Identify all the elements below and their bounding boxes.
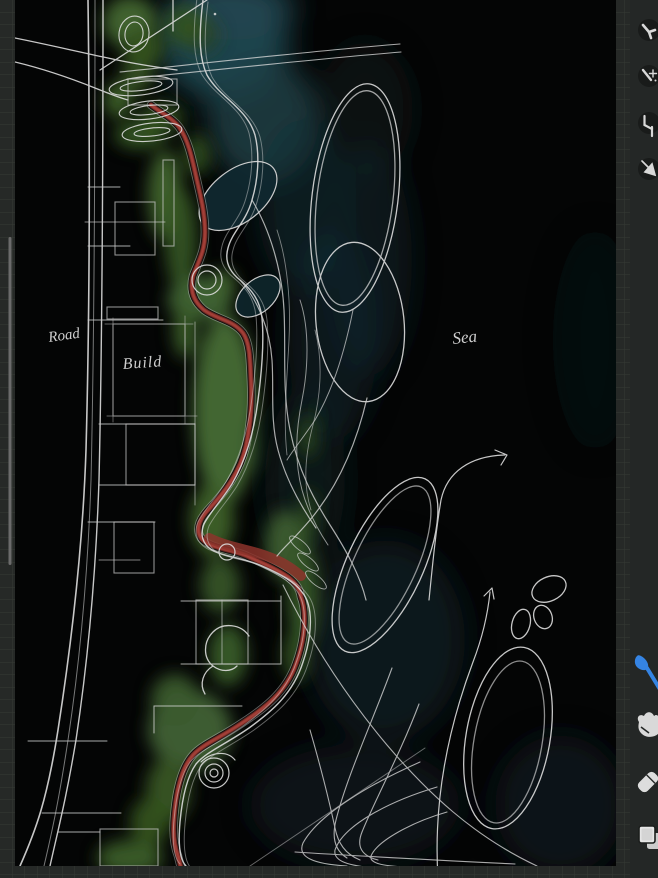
svg-text:Sea: Sea	[451, 327, 477, 348]
svg-text:Build: Build	[122, 353, 163, 373]
